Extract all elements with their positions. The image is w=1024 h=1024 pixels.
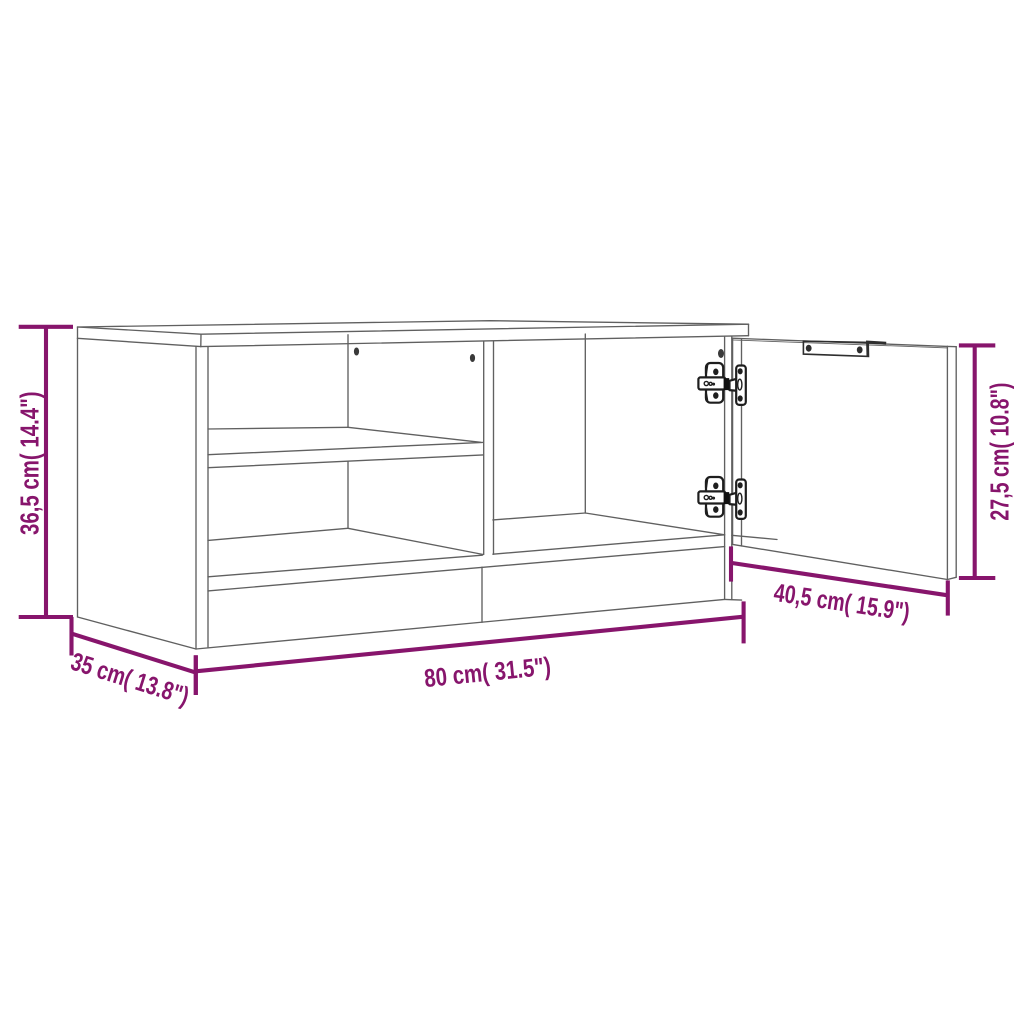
svg-text:27,5 cm( 10.8"): 27,5 cm( 10.8") xyxy=(986,383,1014,521)
svg-text:36,5 cm( 14.4"): 36,5 cm( 14.4") xyxy=(17,391,45,535)
